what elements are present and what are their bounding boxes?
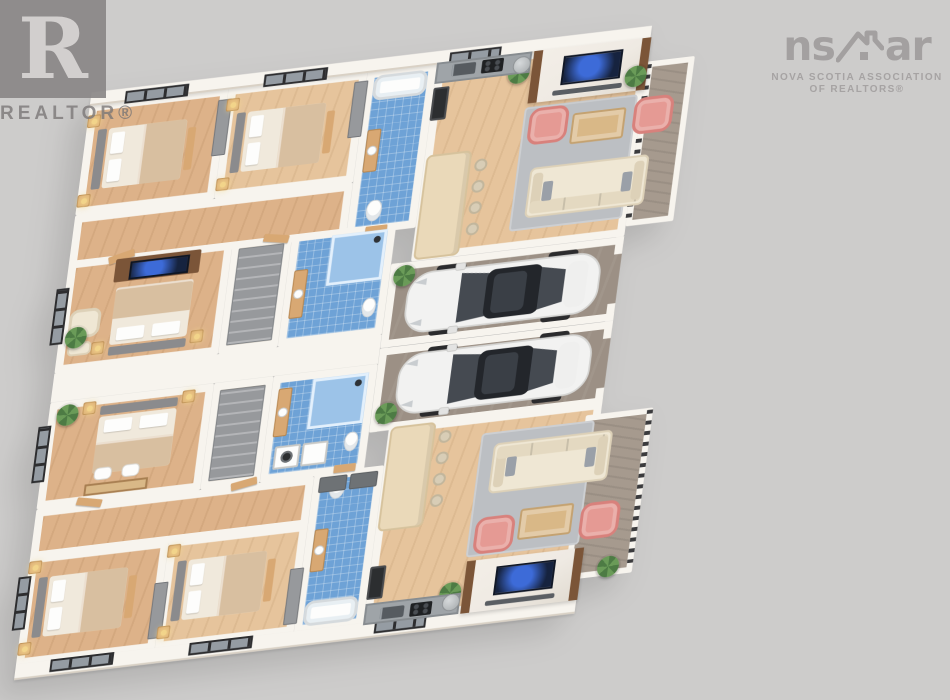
sofa-pillow [505,456,517,476]
pillow [103,417,133,433]
nightstand-lamp [90,341,105,355]
house-roof-icon [836,26,884,66]
washing-machine [272,444,301,470]
cooktop [409,601,433,617]
nightstand-lamp [226,98,241,112]
pillow [249,115,265,138]
garage-door-jamb [614,236,624,254]
shower [326,229,388,286]
nsar-logotype: ns ar [768,26,946,66]
nightstand-lamp [76,194,91,208]
nightstand-lamp [181,389,196,403]
blanket [137,119,188,184]
floorplan-render: R REALTOR® ns ar NOVA SCOTIA ASSOCIATION… [0,0,950,700]
blanket [77,567,128,632]
nightstand-lamp [189,329,204,343]
sofa-pillow [620,172,632,192]
realtor-logo: R [0,0,106,98]
pillow [116,325,146,341]
realtor-r-glyph: R [18,0,88,98]
mattress [181,551,267,620]
pillow [110,131,126,154]
sofa-pillow [584,447,596,467]
pillow [151,320,181,336]
shower [307,373,369,430]
realtor-watermark: R REALTOR® [0,0,126,125]
nsar-text-left: ns [783,26,835,66]
nightstand-lamp [17,642,32,656]
tv-screen [560,49,623,85]
garage-door-jamb [605,303,615,321]
nightstand-lamp [28,560,43,574]
blanket [275,103,326,168]
nsar-text-right: ar [885,26,931,66]
nsar-subtitle-1: NOVA SCOTIA ASSOCIATION [768,72,946,83]
pillow [47,607,63,630]
pillow [139,413,169,429]
nightstand-lamp [82,401,97,415]
pillow [51,579,67,602]
garage-door-jamb [594,388,604,406]
duplex-floorplan [16,37,651,666]
garage-door-jamb [603,321,613,339]
nightstand-lamp [215,177,230,191]
nsar-subtitle-2: OF REALTORS® [768,84,946,95]
nsar-watermark: ns ar NOVA SCOTIA ASSOCIATION OF REALTOR… [768,26,946,95]
bed [108,279,194,356]
door [263,234,290,243]
nightstand-lamp [156,625,171,639]
mattress [42,567,128,636]
mattress [101,119,187,188]
mattress [109,279,194,345]
sofa-pillow [541,181,553,201]
mattress [240,103,326,172]
pillow [245,142,261,165]
blanket [216,551,267,616]
pillow [189,563,205,586]
cooktop [481,58,505,74]
pillow [186,591,202,614]
pillow [106,159,122,182]
tv-screen [493,559,556,595]
realtor-label: REALTOR® [0,103,126,125]
dryer [300,440,329,466]
nightstand-lamp [167,544,182,558]
